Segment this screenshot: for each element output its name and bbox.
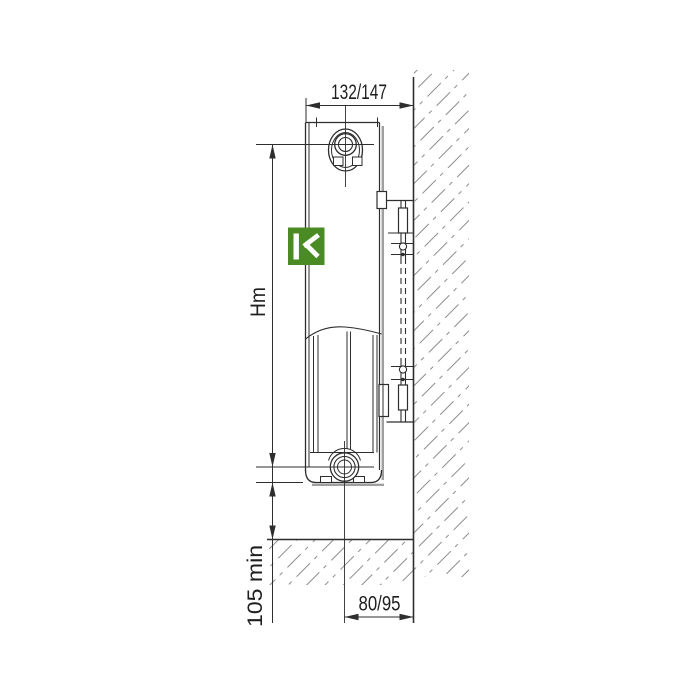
arrowhead-up-icon: [269, 483, 275, 497]
bracket-screw: [399, 366, 406, 373]
radiator-installation-diagram: 132/147 Hm 105 min 80/95: [0, 0, 700, 700]
mounting-bracket-top: [387, 201, 414, 257]
wall-hatch: [414, 70, 469, 577]
bushing-notch: [353, 157, 363, 166]
bracket-slot: [399, 385, 408, 410]
arrowhead-right-icon: [400, 614, 414, 620]
arrowhead-left-icon: [306, 102, 320, 108]
bracket-pin: [401, 253, 404, 256]
bracket-pin: [401, 378, 404, 381]
brand-k-logo-icon: [288, 228, 325, 266]
bottom-foot-tab: [354, 477, 365, 483]
bottom-foot-tab: [321, 477, 332, 483]
arrowhead-left-icon: [345, 614, 359, 620]
cutaway-break-curve: [306, 327, 382, 339]
bracket-slot: [399, 208, 408, 233]
technical-drawing-canvas: 132/147 Hm 105 min 80/95: [0, 0, 700, 700]
arrowhead-right-icon: [400, 102, 414, 108]
bracket-tab-bottom: [379, 385, 389, 417]
mounting-bracket-bottom: [379, 366, 414, 422]
bracket-tab-top: [377, 192, 387, 209]
bracket-screw: [399, 243, 406, 250]
dimension-height-label: Hm: [247, 287, 270, 317]
top-valve-bushing: [256, 106, 374, 187]
radiator-body: [306, 118, 385, 485]
arrowhead-down-icon: [269, 453, 275, 467]
dimension-pipe-offset-label: 80/95: [359, 593, 401, 616]
dimension-pipe-offset: 80/95: [345, 593, 414, 621]
arrowhead-down-icon: [269, 526, 275, 540]
bushing-notch: [334, 157, 344, 166]
dimension-floor-clearance-label: 105 min: [244, 545, 267, 627]
dimension-depth: 132/147: [306, 81, 414, 122]
floor-hatch: [268, 540, 414, 585]
arrowhead-up-icon: [269, 145, 275, 159]
dimension-depth-label: 132/147: [331, 81, 387, 104]
